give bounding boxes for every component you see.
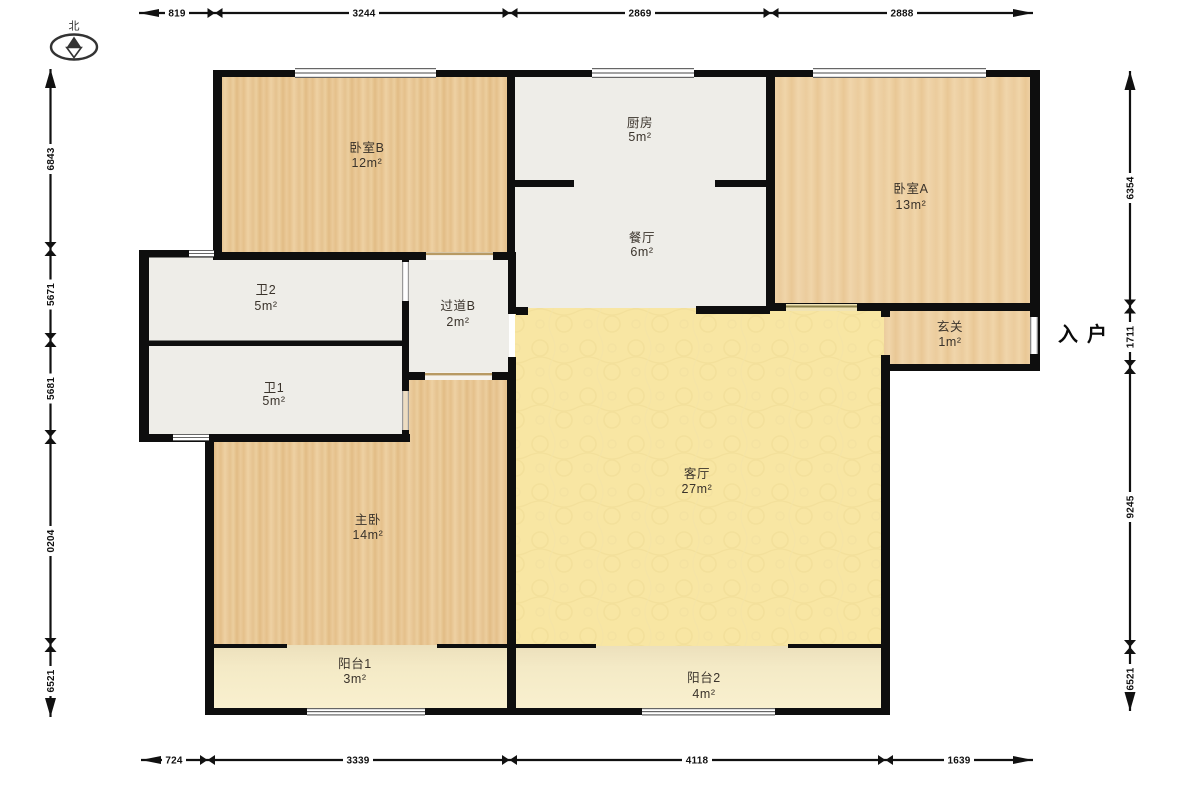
svg-text:2869: 2869: [628, 8, 651, 19]
svg-text:6m²: 6m²: [630, 245, 653, 259]
svg-text:5m²: 5m²: [262, 394, 285, 408]
svg-text:卫2: 卫2: [256, 283, 277, 297]
svg-text:3244: 3244: [352, 8, 375, 19]
svg-text:过道B: 过道B: [440, 299, 475, 313]
svg-text:819: 819: [168, 8, 186, 19]
svg-text:3339: 3339: [346, 756, 369, 767]
svg-text:卫1: 卫1: [264, 381, 285, 395]
svg-text:玄关: 玄关: [937, 319, 963, 334]
svg-text:北: 北: [69, 20, 80, 33]
svg-text:餐厅: 餐厅: [629, 230, 655, 245]
svg-text:6843: 6843: [46, 147, 57, 170]
svg-text:6354: 6354: [1126, 176, 1137, 199]
svg-text:4m²: 4m²: [692, 687, 715, 701]
svg-text:1m²: 1m²: [938, 335, 961, 349]
svg-text:5m²: 5m²: [254, 299, 277, 313]
svg-text:2m²: 2m²: [446, 315, 469, 329]
svg-text:客厅: 客厅: [684, 466, 710, 481]
svg-text:2888: 2888: [890, 8, 913, 19]
svg-text:0204: 0204: [46, 529, 57, 552]
svg-text:阳台2: 阳台2: [687, 670, 721, 685]
svg-text:4118: 4118: [686, 756, 709, 767]
svg-text:6521: 6521: [1126, 667, 1137, 690]
svg-text:阳台1: 阳台1: [338, 656, 372, 671]
svg-text:1711: 1711: [1126, 326, 1137, 349]
svg-text:5m²: 5m²: [628, 130, 651, 144]
svg-text:卧室B: 卧室B: [349, 140, 384, 155]
svg-text:5671: 5671: [46, 283, 57, 306]
svg-text:3m²: 3m²: [343, 672, 366, 686]
svg-text:27m²: 27m²: [682, 482, 713, 496]
svg-text:13m²: 13m²: [896, 198, 927, 212]
svg-text:12m²: 12m²: [352, 156, 383, 170]
svg-text:主卧: 主卧: [355, 513, 381, 527]
svg-text:14m²: 14m²: [353, 528, 384, 542]
svg-text:9245: 9245: [1126, 495, 1137, 518]
svg-text:卧室A: 卧室A: [893, 181, 928, 196]
svg-text:724: 724: [165, 756, 183, 767]
svg-text:入户: 入户: [1058, 322, 1116, 346]
svg-text:厨房: 厨房: [627, 115, 653, 130]
svg-text:1639: 1639: [947, 756, 970, 767]
svg-text:5681: 5681: [46, 377, 57, 400]
svg-text:6521: 6521: [46, 669, 57, 692]
